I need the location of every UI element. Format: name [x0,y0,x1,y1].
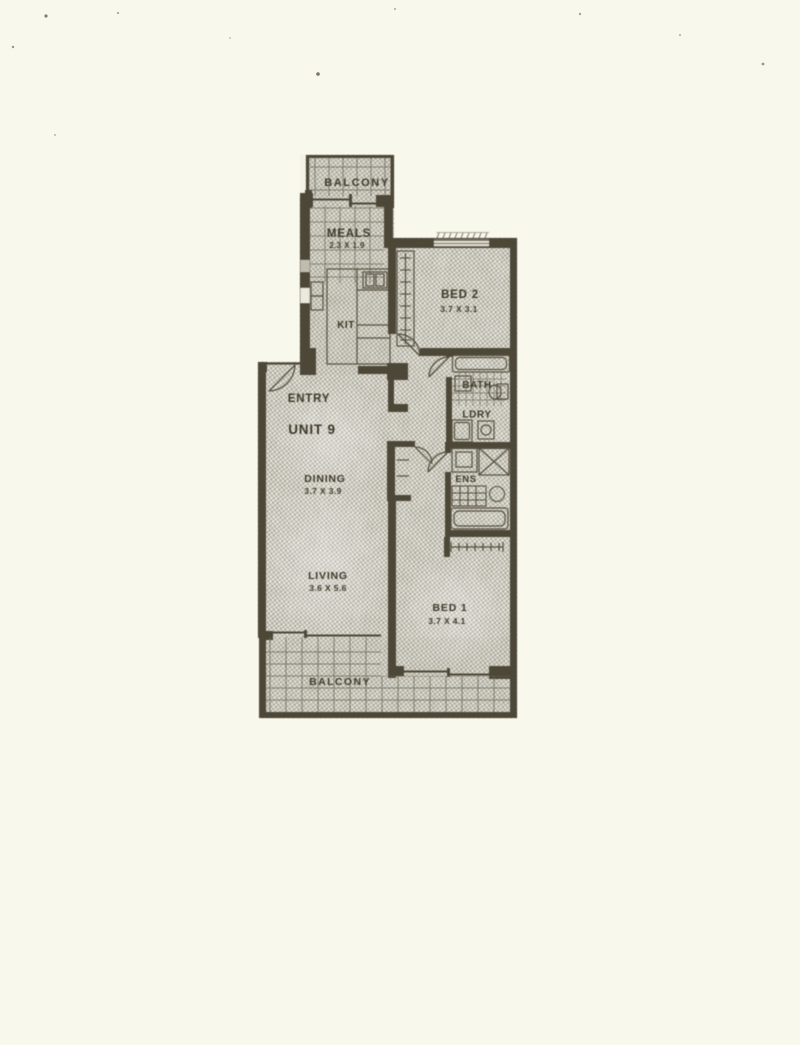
svg-text:3.7 X 4.1: 3.7 X 4.1 [428,616,466,626]
svg-text:ENTRY: ENTRY [288,393,331,405]
svg-text:2.3 X 1.9: 2.3 X 1.9 [329,241,365,250]
svg-text:BALCONY: BALCONY [309,676,371,688]
svg-text:LDRY: LDRY [462,410,491,421]
svg-text:3.7 X 3.9: 3.7 X 3.9 [304,486,342,496]
svg-text:BATH: BATH [462,380,491,391]
svg-text:MEALS: MEALS [327,228,371,240]
svg-text:ENS: ENS [455,474,476,485]
svg-text:UNIT 9: UNIT 9 [288,422,336,437]
svg-text:BED 2: BED 2 [441,289,479,301]
svg-text:BALCONY: BALCONY [324,177,390,189]
svg-text:KIT: KIT [337,320,355,331]
svg-text:3.7 X 3.1: 3.7 X 3.1 [440,304,478,314]
svg-text:BED 1: BED 1 [433,602,468,614]
svg-text:3.6 X 5.6: 3.6 X 5.6 [309,583,347,593]
svg-text:DINING: DINING [304,473,346,485]
svg-text:LIVING: LIVING [308,570,348,582]
